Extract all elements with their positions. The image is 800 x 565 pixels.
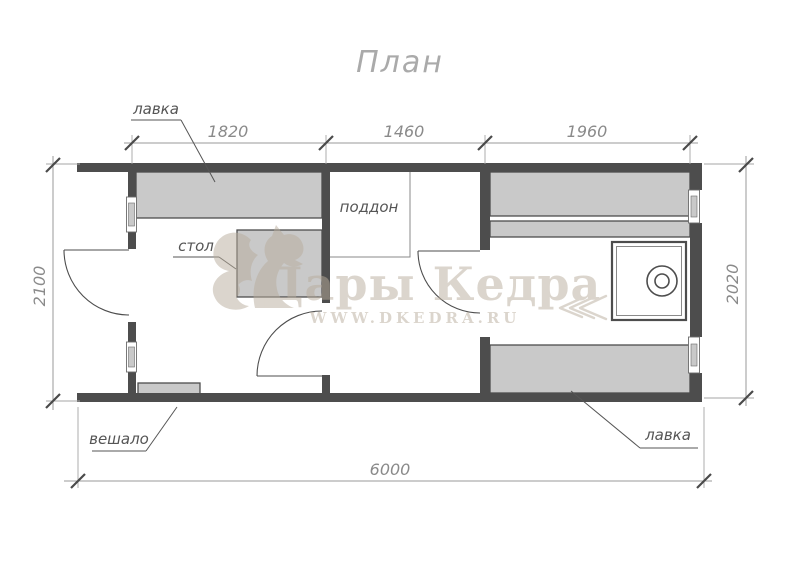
window-left-bottom-glass xyxy=(129,347,135,367)
wall-right-segment xyxy=(690,373,702,402)
entry-door-swing-arc xyxy=(64,250,129,315)
window-right-top-glass xyxy=(691,196,697,217)
watermark-brand: Дары Кедра xyxy=(263,257,602,311)
plan-title: План xyxy=(356,45,444,80)
sauna-bench-step xyxy=(490,221,690,237)
wall-right-segment xyxy=(690,223,702,337)
floor-plan-page: План xyxy=(0,0,800,565)
label-shower-tray: поддон xyxy=(340,198,399,216)
sauna-bench-upper-tier xyxy=(490,172,690,216)
sauna-bench-bottom xyxy=(490,345,690,393)
bench-top-left xyxy=(136,172,322,218)
wall-left-segment xyxy=(128,232,136,249)
wall-left-segment xyxy=(128,372,136,402)
dim-bottom: 6000 xyxy=(370,460,411,479)
label-bench-bottom: лавка xyxy=(644,426,691,444)
label-hanger: вешало xyxy=(89,430,149,448)
dim-top-2: 1460 xyxy=(384,122,425,141)
label-bench-top: лавка xyxy=(132,100,179,118)
window-right-bottom-glass xyxy=(691,344,697,366)
watermark-website: WWW.DKEDRA.RU xyxy=(309,309,521,327)
wall-right-segment xyxy=(690,163,702,190)
dim-top-3: 1960 xyxy=(567,122,608,141)
watermark: Дары Кедра WWW.DKEDRA.RU xyxy=(213,225,606,327)
stove xyxy=(612,242,686,320)
partition-2-segment xyxy=(480,337,490,393)
dim-top-1: 1820 xyxy=(208,122,249,141)
wall-left-segment xyxy=(128,163,136,197)
dim-right: 2020 xyxy=(723,264,742,305)
window-left-top-glass xyxy=(129,203,135,226)
wall-top xyxy=(77,163,702,172)
partition-1-segment xyxy=(322,375,330,393)
partition-2-segment xyxy=(480,172,490,250)
label-leader xyxy=(146,407,177,451)
label-table: стол xyxy=(178,237,214,255)
stove-chimney-inner xyxy=(655,274,669,288)
wall-left-segment xyxy=(128,322,136,342)
dim-left: 2100 xyxy=(30,266,49,307)
wall-bottom xyxy=(77,393,702,402)
floor-plan-drawing: План xyxy=(0,0,800,565)
